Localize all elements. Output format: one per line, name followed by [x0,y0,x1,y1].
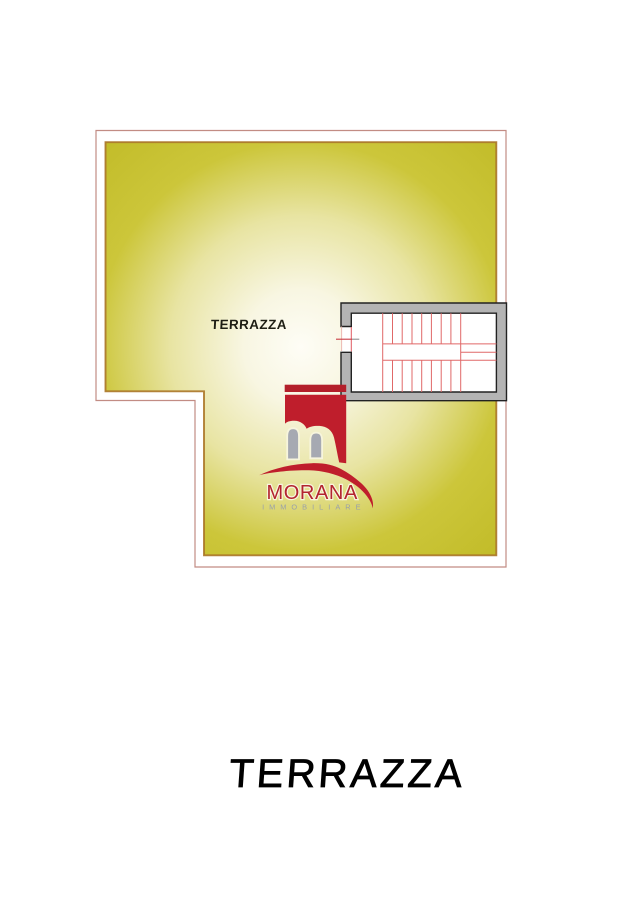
svg-text:TERRAZZA: TERRAZZA [210,317,287,332]
svg-text:IMMOBILIARE: IMMOBILIARE [262,503,365,512]
svg-text:TERRAZZA: TERRAZZA [228,752,467,796]
svg-text:MORANA: MORANA [267,482,358,504]
